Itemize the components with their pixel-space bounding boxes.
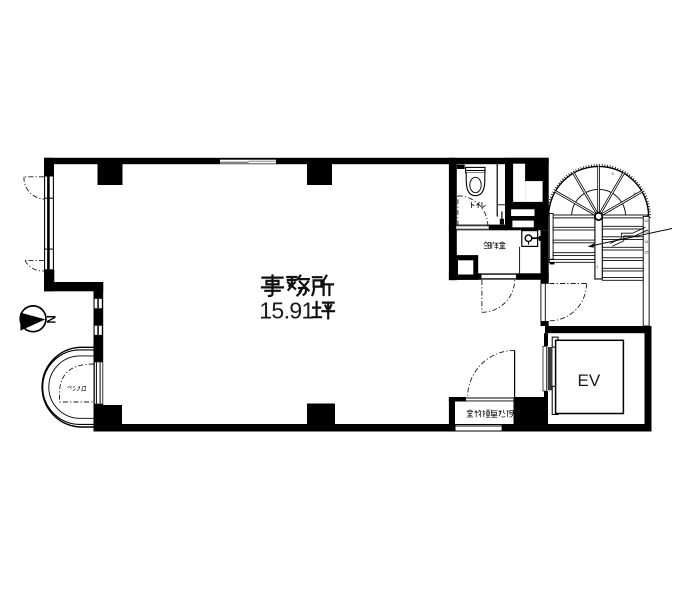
- svg-text:15: 15: [644, 250, 649, 255]
- svg-text:EV: EV: [578, 371, 601, 390]
- svg-text:15.91: 15.91: [259, 298, 314, 324]
- svg-text:14: 14: [644, 239, 649, 244]
- svg-text:13: 13: [644, 229, 649, 234]
- svg-text:N: N: [44, 315, 56, 323]
- svg-text:12: 12: [644, 218, 649, 223]
